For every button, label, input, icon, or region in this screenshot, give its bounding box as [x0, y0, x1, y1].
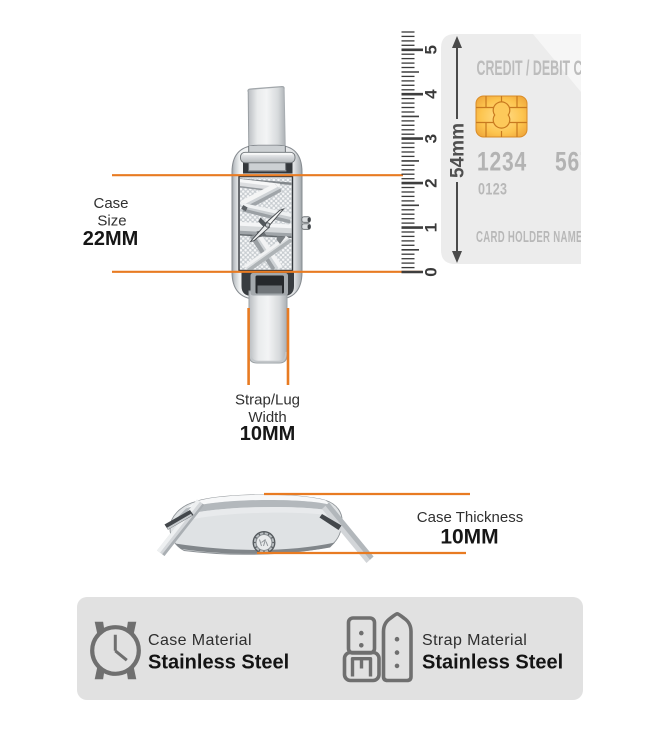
svg-text:1234: 1234 [477, 147, 527, 177]
svg-text:10MM: 10MM [240, 423, 296, 445]
svg-text:CARD HOLDER NAME: CARD HOLDER NAME [476, 228, 583, 246]
svg-text:22MM: 22MM [83, 228, 139, 250]
svg-text:Stainless Steel: Stainless Steel [148, 652, 289, 674]
svg-text:3: 3 [422, 134, 441, 143]
svg-text:0: 0 [422, 267, 441, 276]
svg-text:1: 1 [422, 223, 441, 232]
svg-text:4: 4 [422, 89, 441, 99]
svg-text:54mm: 54mm [448, 123, 469, 178]
svg-text:Case Material: Case Material [148, 632, 252, 649]
svg-text:Strap/Lug: Strap/Lug [235, 392, 300, 409]
svg-text:567: 567 [555, 147, 592, 177]
svg-text:Size: Size [97, 213, 126, 230]
svg-text:Case: Case [93, 195, 128, 212]
svg-text:Case Thickness: Case Thickness [417, 509, 523, 526]
svg-text:Stainless Steel: Stainless Steel [422, 652, 563, 674]
svg-text:10MM: 10MM [440, 526, 498, 549]
svg-text:CREDIT / DEBIT CARD: CREDIT / DEBIT CARD [477, 56, 610, 80]
svg-text:0123: 0123 [478, 181, 507, 199]
svg-text:2: 2 [422, 178, 441, 187]
svg-text:Strap Material: Strap Material [422, 632, 527, 649]
svg-text:5: 5 [422, 45, 441, 54]
